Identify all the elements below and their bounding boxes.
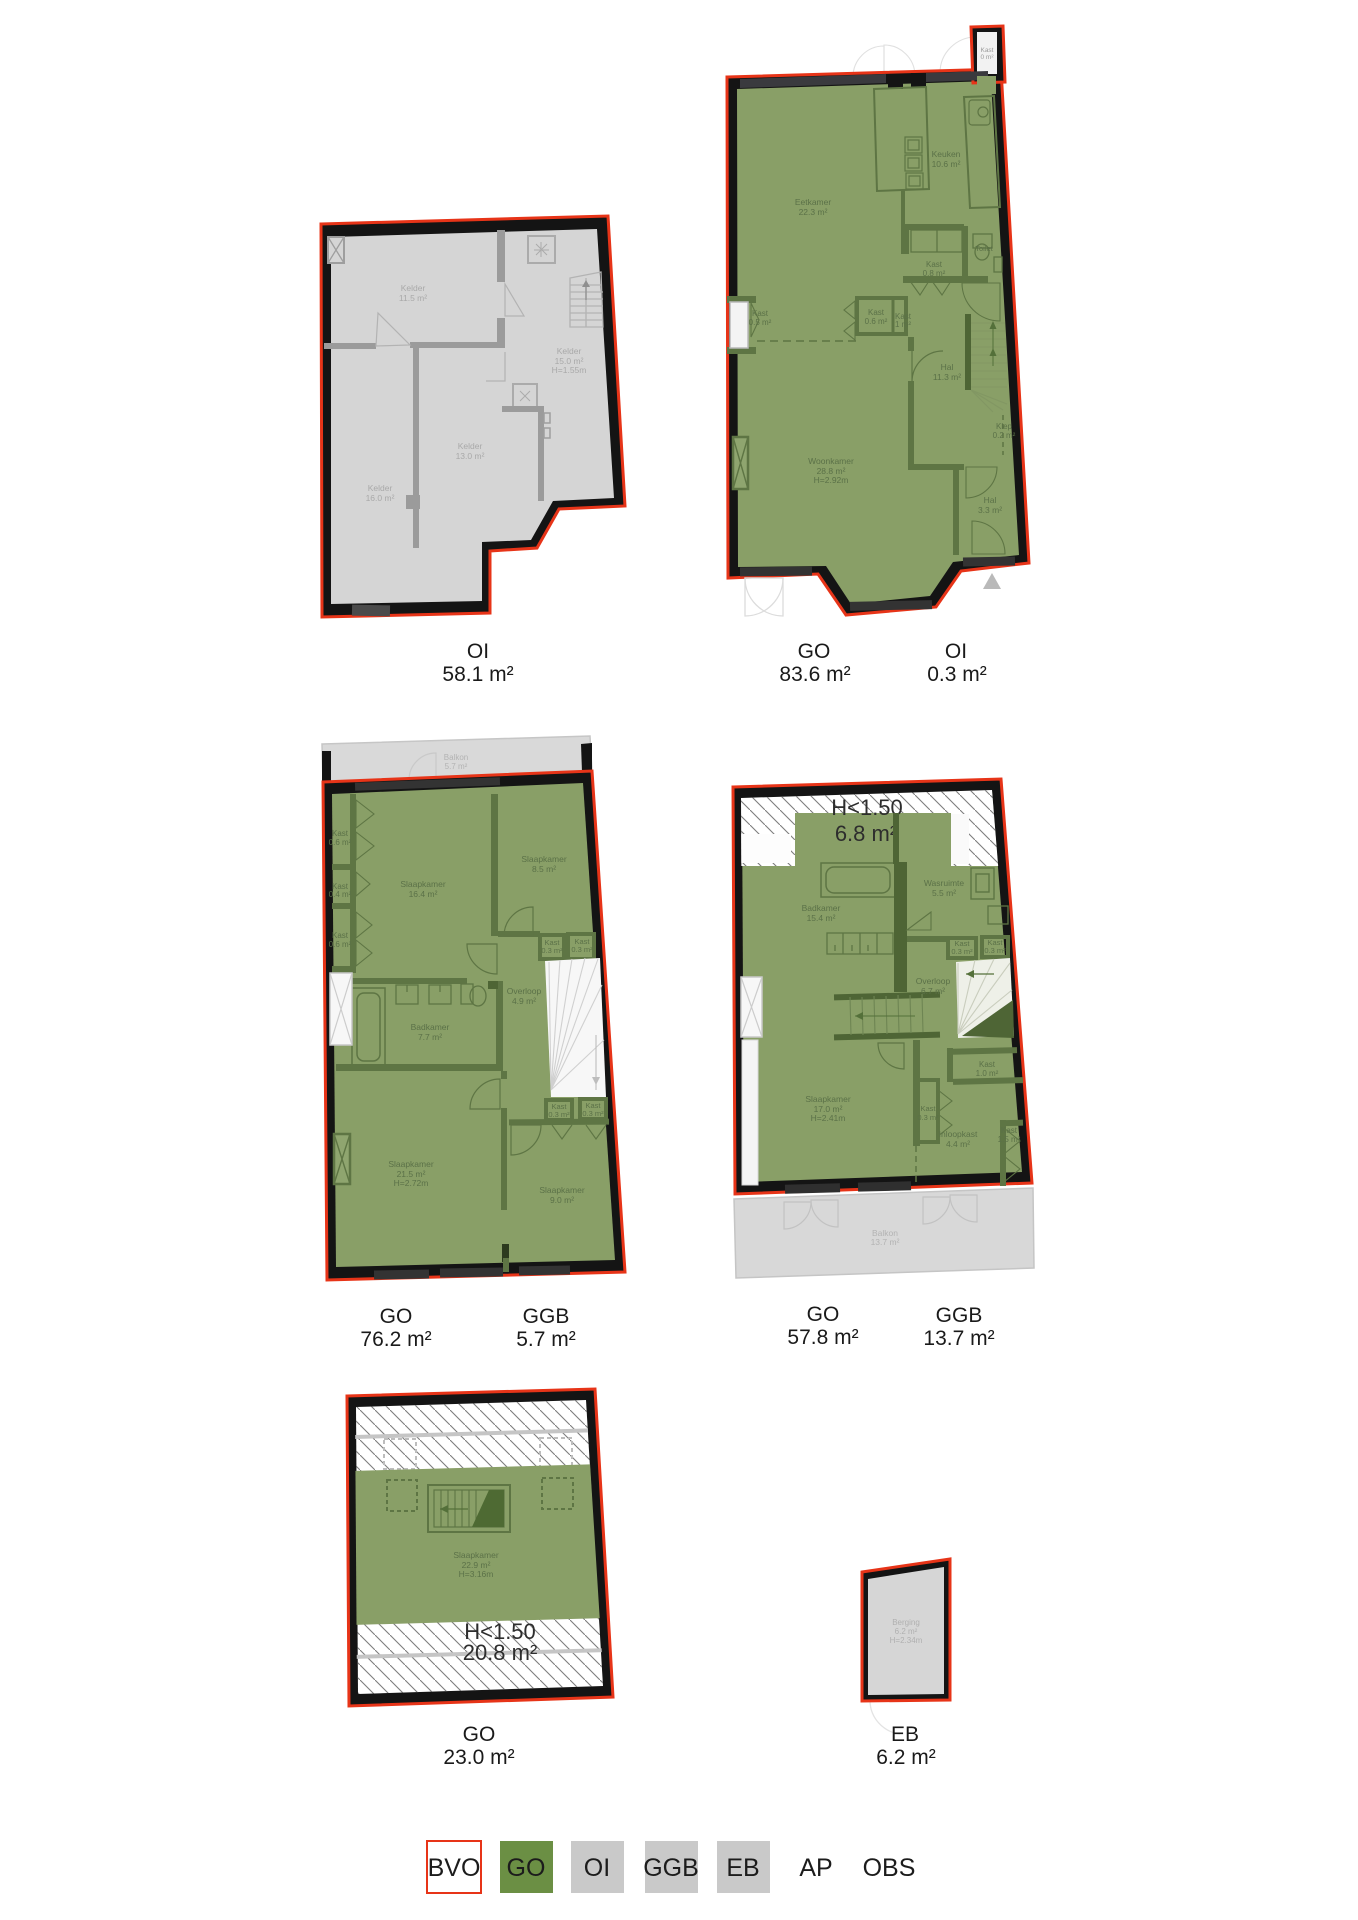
svg-text:Kast: Kast [868,308,885,317]
svg-text:H=1.55m: H=1.55m [552,365,587,375]
svg-text:Badkamer: Badkamer [411,1022,450,1032]
svg-text:0.6 m²: 0.6 m² [329,940,352,949]
svg-text:H=2.72m: H=2.72m [394,1178,429,1188]
svg-text:57.8 m²: 57.8 m² [787,1326,858,1349]
svg-text:4.9 m²: 4.9 m² [512,996,536,1006]
svg-text:0.4 m²: 0.4 m² [329,890,352,899]
svg-text:13.7 m²: 13.7 m² [871,1237,900,1247]
svg-text:OI: OI [584,1854,610,1882]
svg-text:0.3 m²: 0.3 m² [917,1113,939,1122]
svg-text:EB: EB [726,1854,759,1882]
svg-text:Berging: Berging [892,1618,920,1627]
svg-text:16.0 m²: 16.0 m² [366,493,395,503]
svg-text:3.3 m²: 3.3 m² [978,505,1002,515]
svg-text:76.2 m²: 76.2 m² [360,1328,431,1351]
svg-text:9.0 m²: 9.0 m² [550,1195,574,1205]
svg-text:OBS: OBS [863,1854,916,1882]
svg-text:0.3 m²: 0.3 m² [571,945,593,954]
svg-text:0.3 m²: 0.3 m² [951,947,973,956]
svg-text:Wasruimte: Wasruimte [924,878,965,888]
svg-text:83.6 m²: 83.6 m² [779,663,850,686]
svg-text:Kast: Kast [332,829,349,838]
svg-text:0.3 m²: 0.3 m² [984,946,1006,955]
svg-text:GO: GO [798,640,831,663]
svg-text:Slaapkamer: Slaapkamer [539,1185,585,1195]
svg-text:6.8 m²: 6.8 m² [835,821,897,846]
svg-text:Slaapkamer: Slaapkamer [400,879,446,889]
svg-text:6.2 m²: 6.2 m² [895,1627,918,1636]
svg-text:5.5 m²: 5.5 m² [932,888,956,898]
svg-text:1 m²: 1 m² [895,320,911,329]
svg-text:0.6 m²: 0.6 m² [329,838,352,847]
svg-text:Klep: Klep [996,422,1013,431]
svg-text:BVO: BVO [428,1854,481,1882]
svg-text:AP: AP [799,1854,832,1882]
svg-text:H=2.92m: H=2.92m [814,475,849,485]
svg-text:16.4 m²: 16.4 m² [409,889,438,899]
svg-text:Balkon: Balkon [444,753,468,762]
svg-text:OI: OI [467,640,489,663]
svg-text:Eetkamer: Eetkamer [795,197,832,207]
svg-text:GGB: GGB [936,1304,983,1327]
svg-text:4.4 m²: 4.4 m² [946,1139,970,1149]
svg-text:EB: EB [891,1723,919,1746]
svg-text:20.8 m²: 20.8 m² [463,1640,538,1665]
svg-text:Kast: Kast [920,1104,936,1113]
svg-text:7.7 m²: 7.7 m² [418,1032,442,1042]
svg-text:GO: GO [463,1723,496,1746]
svg-text:GO: GO [807,1303,840,1326]
svg-text:Kast: Kast [926,260,943,269]
svg-text:23.0 m²: 23.0 m² [443,1746,514,1769]
svg-text:Hal: Hal [984,495,997,505]
svg-text:1.5 m²: 1.5 m² [998,1135,1021,1144]
svg-text:0.3 m²: 0.3 m² [927,663,987,686]
svg-text:6.7 m²: 6.7 m² [921,986,945,996]
svg-text:0 m²: 0 m² [981,54,995,61]
svg-text:58.1 m²: 58.1 m² [442,663,513,686]
svg-text:GO: GO [380,1305,413,1328]
svg-text:H=3.16m: H=3.16m [459,1569,494,1579]
svg-text:Badkamer: Badkamer [802,903,841,913]
svg-text:Slaapkamer: Slaapkamer [453,1550,499,1560]
svg-text:Kelder: Kelder [458,441,483,451]
svg-text:15.4 m²: 15.4 m² [807,913,836,923]
svg-text:Slaapkamer: Slaapkamer [805,1094,851,1104]
svg-text:13.7 m²: 13.7 m² [923,1327,994,1350]
svg-text:Woonkamer: Woonkamer [808,456,854,466]
svg-text:11.5 m²: 11.5 m² [399,293,427,303]
svg-text:GGB: GGB [523,1305,570,1328]
svg-text:Overloop: Overloop [916,976,951,986]
svg-text:Kast: Kast [752,309,769,318]
svg-text:5.7 m²: 5.7 m² [445,762,468,771]
svg-text:Kast: Kast [979,1060,996,1069]
svg-text:Slaapkamer: Slaapkamer [521,854,567,864]
svg-text:8.5 m²: 8.5 m² [532,864,556,874]
svg-text:Kelder: Kelder [401,283,426,293]
svg-text:Keuken: Keuken [932,149,961,159]
svg-text:Slaapkamer: Slaapkamer [388,1159,434,1169]
svg-text:5.7 m²: 5.7 m² [516,1328,576,1351]
svg-text:0.3 m²: 0.3 m² [541,946,563,955]
svg-text:0.3 m²: 0.3 m² [582,1109,604,1118]
svg-text:GO: GO [507,1854,546,1882]
svg-text:0.5 m²: 0.5 m² [749,318,772,327]
svg-text:0.6 m²: 0.6 m² [865,317,888,326]
svg-text:10.6 m²: 10.6 m² [932,159,961,169]
svg-text:13.0 m²: 13.0 m² [456,451,485,461]
svg-text:OI: OI [945,640,967,663]
svg-text:6.2 m²: 6.2 m² [876,1746,936,1769]
svg-text:Kast: Kast [1001,1126,1018,1135]
svg-text:H=2.41m: H=2.41m [811,1113,846,1123]
svg-text:Kast: Kast [980,47,993,54]
svg-text:0.3 m²: 0.3 m² [548,1110,570,1119]
svg-text:Kelder: Kelder [368,483,393,493]
svg-text:1.0 m²: 1.0 m² [976,1069,999,1078]
svg-text:Kelder: Kelder [557,346,582,356]
svg-text:H<1.50: H<1.50 [831,795,903,820]
svg-text:GGB: GGB [643,1854,699,1882]
svg-text:0.8 m²: 0.8 m² [923,269,946,278]
svg-text:0.2 m²: 0.2 m² [993,431,1016,440]
svg-text:Overloop: Overloop [507,986,542,996]
svg-text:22.3 m²: 22.3 m² [799,207,828,217]
svg-text:11.3 m²: 11.3 m² [933,372,961,382]
svg-text:Kast: Kast [332,931,349,940]
svg-text:Hal: Hal [941,362,954,372]
svg-text:Inloopkast: Inloopkast [939,1129,978,1139]
svg-text:H=2.34m: H=2.34m [890,1636,923,1645]
svg-text:Toilet: Toilet [975,244,993,253]
